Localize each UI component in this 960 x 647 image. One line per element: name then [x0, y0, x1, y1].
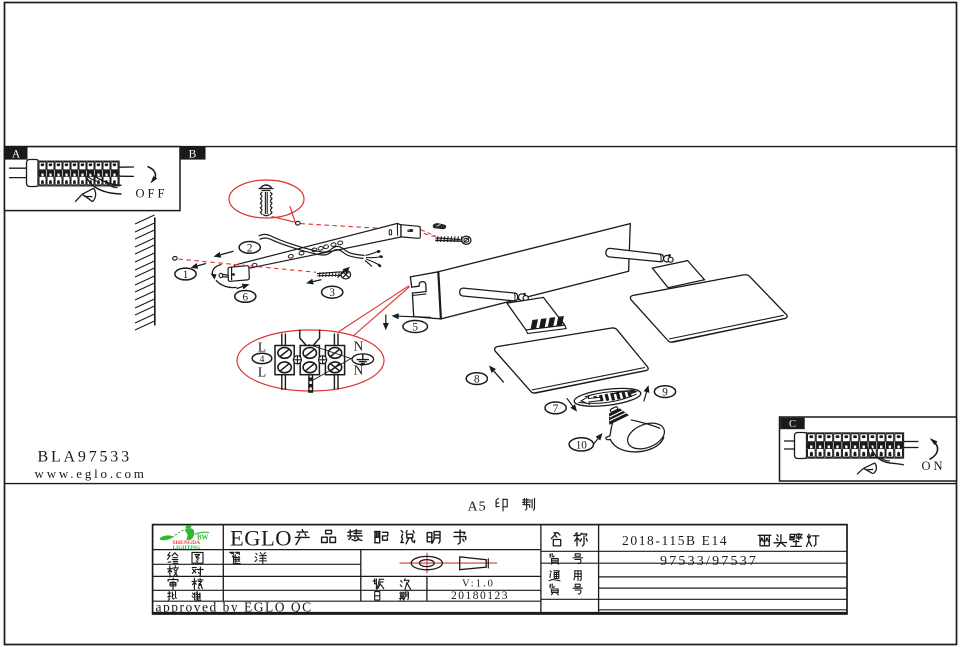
svg-text:BLA97533: BLA97533: [38, 449, 132, 466]
svg-text:A: A: [12, 149, 21, 161]
svg-text:N: N: [354, 339, 364, 354]
svg-text:1: 1: [183, 269, 189, 281]
svg-text:www.eglo.com: www.eglo.com: [35, 466, 147, 481]
svg-text:2018-115B E14: 2018-115B E14: [622, 533, 728, 548]
svg-text:8: 8: [474, 374, 480, 386]
svg-text:EGLO: EGLO: [230, 526, 292, 551]
svg-text:7: 7: [553, 403, 559, 415]
svg-text:C: C: [789, 419, 796, 430]
svg-text:OFF: OFF: [136, 187, 168, 201]
svg-text:9: 9: [662, 387, 668, 399]
svg-text:approved by EGLO QC: approved by EGLO QC: [156, 599, 313, 614]
svg-text:LIGHTING: LIGHTING: [173, 545, 202, 551]
svg-text:L: L: [258, 365, 266, 380]
svg-text:20180123: 20180123: [451, 590, 509, 602]
svg-text:4: 4: [260, 355, 265, 365]
svg-text:6: 6: [243, 291, 249, 303]
svg-text:B: B: [189, 149, 197, 161]
svg-text:ON: ON: [922, 459, 946, 473]
svg-text:3: 3: [329, 287, 335, 299]
svg-text:L: L: [258, 340, 266, 355]
svg-text:5: 5: [412, 322, 418, 334]
svg-text:A5: A5: [468, 500, 487, 515]
svg-text:V:1.0: V:1.0: [462, 578, 495, 589]
svg-text:2: 2: [247, 242, 253, 254]
svg-text:10: 10: [576, 439, 588, 451]
svg-text:97533/97537: 97533/97537: [660, 554, 758, 569]
